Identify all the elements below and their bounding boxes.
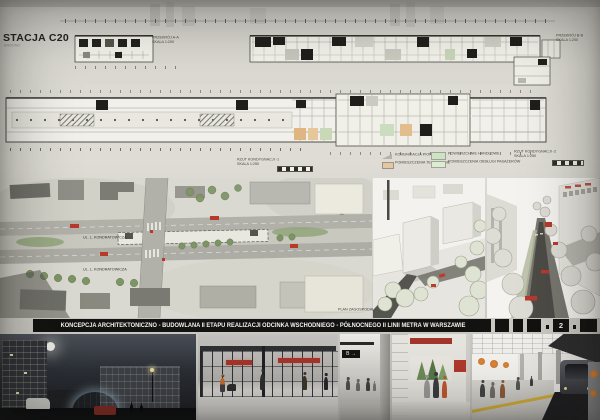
side-wall xyxy=(380,334,390,420)
person-figure xyxy=(424,380,430,398)
upper-plan-strip xyxy=(55,16,565,72)
scale-bar xyxy=(277,166,313,172)
windshield xyxy=(565,364,589,379)
level-minus1-label: RZUT KONDYGNACJI -1SKALA 1:250 xyxy=(237,158,279,167)
person-figure xyxy=(346,380,350,390)
white-van xyxy=(26,398,50,409)
lit-window xyxy=(10,354,13,356)
level-minus2-label: RZUT KONDYGNACJI -2SKALA 1:250 xyxy=(514,150,556,159)
red-vehicle xyxy=(94,406,116,415)
headlight xyxy=(564,387,567,390)
red-signage xyxy=(226,360,252,365)
orange-circle-graphic xyxy=(503,362,509,368)
wayfinding-sign: B → xyxy=(342,350,360,358)
indicator-block xyxy=(527,319,541,332)
orange-circle-graphic xyxy=(490,360,498,368)
person-figure xyxy=(373,383,376,391)
lamp-light xyxy=(150,368,154,372)
indicator-dot xyxy=(546,325,549,329)
render-platform xyxy=(472,334,600,420)
legend-label: POMIESZCZENIA OBSŁUGI PASAŻERÓW xyxy=(448,160,520,164)
legend-label: POWIERZCHNIE HANDLOWE xyxy=(448,152,499,156)
legend-swatch-retail xyxy=(431,152,446,160)
person-stroller xyxy=(220,378,225,392)
platform-column xyxy=(538,352,542,382)
station-subtitle: BRÓDNO xyxy=(4,44,20,48)
street-lamp xyxy=(152,370,153,402)
stroller xyxy=(227,384,236,391)
red-signage xyxy=(278,358,320,363)
title-banner: KONCEPCJA ARCHITEKTONICZNO - BUDOWLANA I… xyxy=(33,319,491,332)
red-sign-band xyxy=(410,338,452,344)
scale-bar xyxy=(552,160,584,166)
competition-board: STACJA C20 BRÓDNO xyxy=(0,0,600,420)
person-figure xyxy=(516,380,520,390)
title-banner-text: KONCEPCJA ARCHITEKTONICZNO - BUDOWLANA I… xyxy=(61,319,466,332)
person-figure xyxy=(140,405,143,412)
person-figure xyxy=(480,384,485,397)
ceiling-slot xyxy=(340,342,374,345)
legend-swatch-technical xyxy=(382,162,394,169)
render-glass-pavilion xyxy=(198,334,338,420)
skyline-bar xyxy=(0,0,600,7)
indicator-block xyxy=(495,319,509,332)
person-figure xyxy=(490,386,495,398)
aerial-render xyxy=(373,178,485,318)
section-label: PRZEKRÓJ A-ASKALA 1:200 xyxy=(152,36,179,45)
mid-rooms-cluster xyxy=(292,99,336,141)
tech-block-plan xyxy=(336,94,470,146)
person-figure xyxy=(366,381,370,391)
person-figure xyxy=(302,376,307,390)
person-figure xyxy=(130,404,133,412)
street-label: UL. L. KONDRATOWICZA xyxy=(83,236,127,240)
person-figure xyxy=(356,382,360,391)
legend-swatch-passenger xyxy=(431,161,446,168)
site-plan xyxy=(0,178,372,318)
dimension-ticks-upper xyxy=(8,90,538,93)
platform-column xyxy=(520,354,524,380)
render-passage: B → xyxy=(340,334,390,420)
lit-window xyxy=(16,392,19,394)
section-right-label: PRZEKRÓJ B-BSKALA 1:200 xyxy=(556,34,583,43)
indicator-block xyxy=(580,319,597,332)
person-figure xyxy=(442,381,447,398)
platform-plan-strip xyxy=(0,84,600,164)
person-figure xyxy=(260,374,265,390)
street-render xyxy=(487,178,600,318)
orange-circle-graphic xyxy=(590,390,597,397)
platform-hall-plan xyxy=(6,94,546,146)
dimension-ticks-top xyxy=(60,19,555,23)
indicator-block xyxy=(513,319,523,332)
right-wing-plan xyxy=(472,99,544,141)
person-figure xyxy=(433,378,439,398)
render-night-exterior xyxy=(0,334,196,420)
person-figure xyxy=(500,384,505,398)
reflective-floor xyxy=(392,402,470,420)
moon xyxy=(46,342,55,351)
orange-circle-graphic xyxy=(590,370,598,378)
person-figure xyxy=(324,377,328,390)
page-number-block: 2 xyxy=(553,319,569,332)
street-label: UL. L. KONDRATOWICZA xyxy=(83,268,127,272)
orange-circle-graphic xyxy=(478,358,485,365)
lit-window xyxy=(24,372,27,374)
render-concourse xyxy=(392,334,470,420)
indicator-dot xyxy=(573,325,576,329)
person-figure xyxy=(530,378,533,386)
